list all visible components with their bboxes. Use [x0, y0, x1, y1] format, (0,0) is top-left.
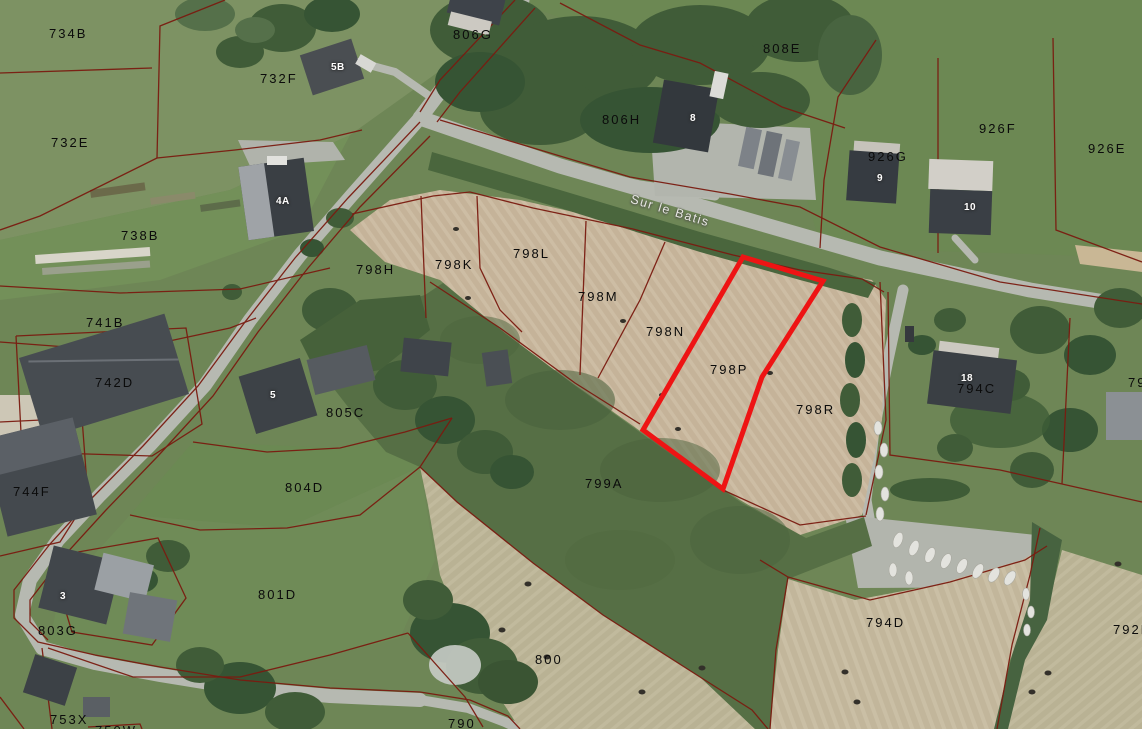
- map-canvas[interactable]: Sur le Batis 734B732E732F806G808E806H926…: [0, 0, 1142, 729]
- aerial-map[interactable]: [0, 0, 1142, 729]
